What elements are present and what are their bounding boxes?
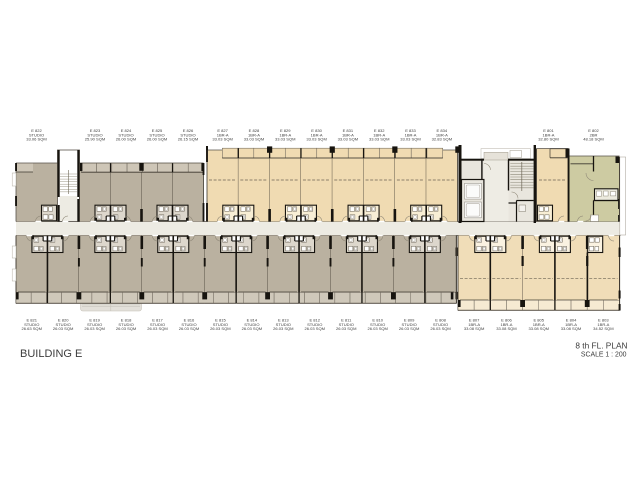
svg-text:33.06 SQM: 33.06 SQM — [26, 137, 47, 142]
svg-text:33.03 SQM: 33.03 SQM — [306, 137, 327, 142]
svg-text:33.08 SQM: 33.08 SQM — [496, 326, 517, 331]
svg-text:BUILDING E: BUILDING E — [20, 348, 82, 360]
svg-text:26.03 SQM: 26.03 SQM — [367, 326, 388, 331]
svg-text:8 th FL. PLAN: 8 th FL. PLAN — [575, 341, 627, 351]
svg-text:26.03 SQM: 26.03 SQM — [210, 326, 231, 331]
svg-text:26.03 SQM: 26.03 SQM — [147, 326, 168, 331]
svg-text:32.80 SQM: 32.80 SQM — [538, 137, 559, 142]
svg-text:32.83 SQM: 32.83 SQM — [432, 137, 453, 142]
svg-text:33.03 SQM: 33.03 SQM — [212, 137, 233, 142]
svg-text:26.00 SQM: 26.00 SQM — [116, 137, 137, 142]
svg-text:33.08 SQM: 33.08 SQM — [464, 326, 485, 331]
svg-text:33.03 SQM: 33.03 SQM — [338, 137, 359, 142]
svg-text:33.08 SQM: 33.08 SQM — [561, 326, 582, 331]
svg-text:33.03 SQM: 33.03 SQM — [369, 137, 390, 142]
svg-text:33.03 SQM: 33.03 SQM — [244, 137, 265, 142]
svg-text:33.08 SQM: 33.08 SQM — [529, 326, 550, 331]
svg-text:26.63 SQM: 26.63 SQM — [21, 326, 42, 331]
svg-text:48.18 SQM: 48.18 SQM — [583, 137, 604, 142]
svg-text:26.03 SQM: 26.03 SQM — [399, 326, 420, 331]
svg-text:25.90 SQM: 25.90 SQM — [85, 137, 106, 142]
svg-text:26.03 SQM: 26.03 SQM — [273, 326, 294, 331]
svg-text:26.03 SQM: 26.03 SQM — [305, 326, 326, 331]
svg-text:26.03 SQM: 26.03 SQM — [116, 326, 137, 331]
svg-text:26.03 SQM: 26.03 SQM — [179, 326, 200, 331]
svg-text:26.15 SQM: 26.15 SQM — [178, 137, 199, 142]
svg-text:26.03 SQM: 26.03 SQM — [53, 326, 74, 331]
svg-text:26.03 SQM: 26.03 SQM — [430, 326, 451, 331]
svg-text:33.03 SQM: 33.03 SQM — [400, 137, 421, 142]
svg-text:26.03 SQM: 26.03 SQM — [84, 326, 105, 331]
svg-text:26.00 SQM: 26.00 SQM — [147, 137, 168, 142]
svg-text:26.03 SQM: 26.03 SQM — [336, 326, 357, 331]
svg-text:26.03 SQM: 26.03 SQM — [242, 326, 263, 331]
svg-text:34.52 SQM: 34.52 SQM — [593, 326, 614, 331]
svg-text:SCALE 1 : 200: SCALE 1 : 200 — [581, 352, 627, 359]
svg-text:33.03 SQM: 33.03 SQM — [275, 137, 296, 142]
